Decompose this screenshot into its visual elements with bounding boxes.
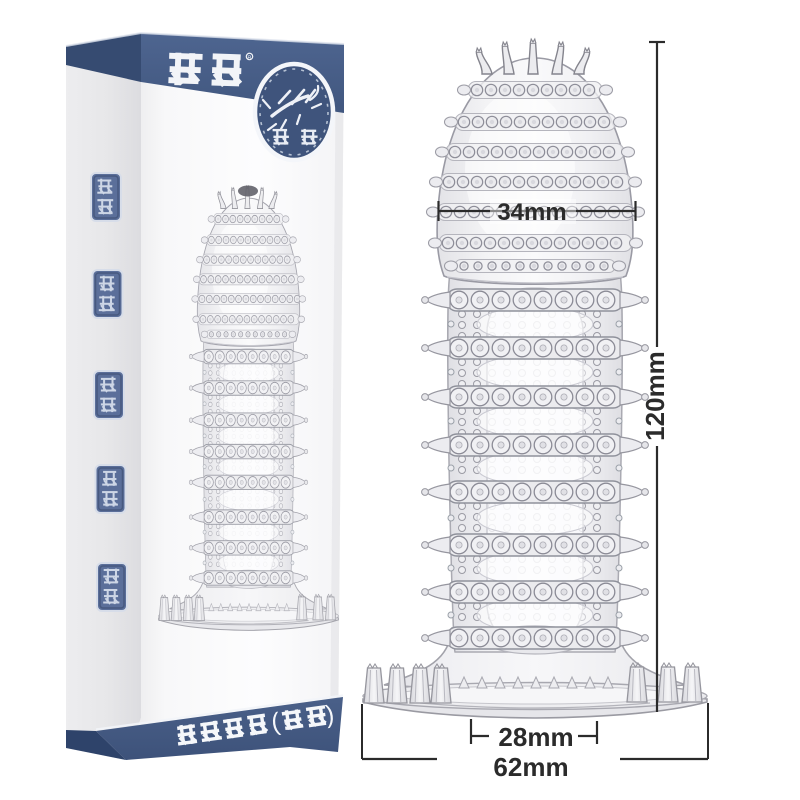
svg-text:34mm: 34mm: [497, 199, 566, 226]
svg-text:28mm: 28mm: [498, 722, 573, 752]
svg-text:120mm: 120mm: [640, 351, 670, 441]
svg-text:R: R: [247, 55, 251, 61]
svg-text:62mm: 62mm: [493, 752, 568, 782]
